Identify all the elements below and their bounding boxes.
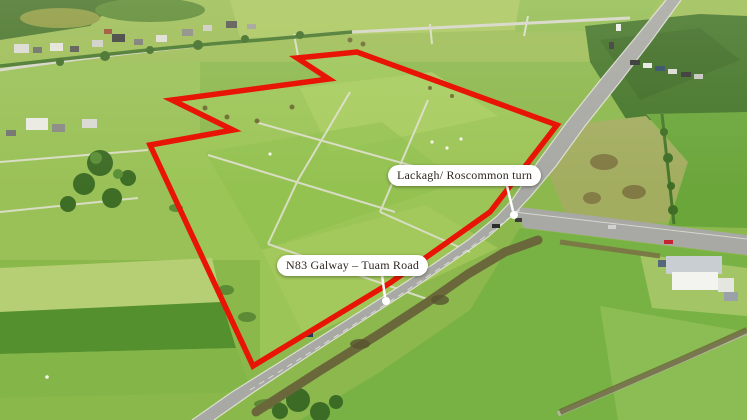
road-label: N83 Galway – Tuam Road <box>277 255 428 276</box>
road-anchor-dot <box>382 297 390 305</box>
aerial-scene <box>0 0 747 420</box>
aerial-photo-viewport: Lackagh/ Roscommon turn N83 Galway – Tua… <box>0 0 747 420</box>
junction-label: Lackagh/ Roscommon turn <box>388 165 541 186</box>
junction-anchor-dot <box>510 211 518 219</box>
